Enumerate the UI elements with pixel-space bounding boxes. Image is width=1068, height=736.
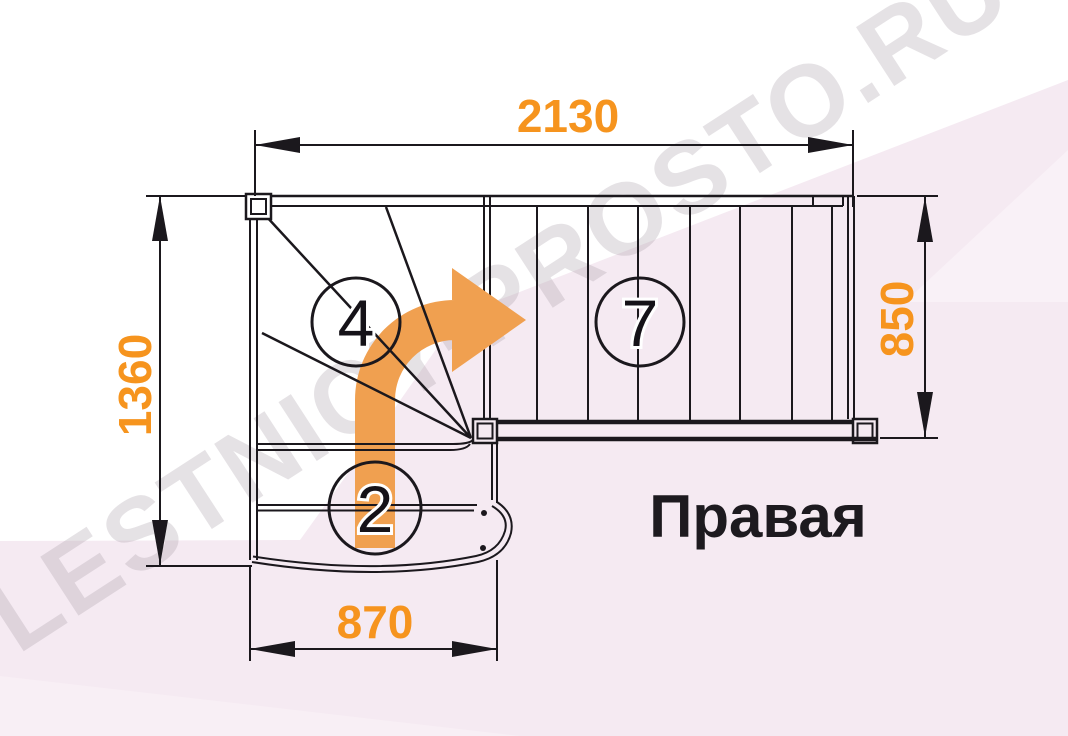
dimension-bottom-value: 870 <box>337 596 414 648</box>
direction-label: Правая <box>649 483 867 550</box>
stair-plan-diagram: LESTNICY-PROSTO.RU <box>0 0 1068 736</box>
dimension-top-value: 2130 <box>517 90 619 142</box>
diagram-canvas: LESTNICY-PROSTO.RU <box>0 0 1068 736</box>
dimension-right-value: 850 <box>871 281 923 358</box>
dowel-dot-2 <box>480 545 486 551</box>
dowel-dot-1 <box>481 510 487 516</box>
lower-flight-count-value: 2 <box>357 472 394 546</box>
newel-post-top-left <box>246 194 271 219</box>
winder-count-value: 4 <box>338 286 375 360</box>
dimension-left-value: 1360 <box>109 334 161 436</box>
upper-flight-count-value: 7 <box>622 286 659 360</box>
